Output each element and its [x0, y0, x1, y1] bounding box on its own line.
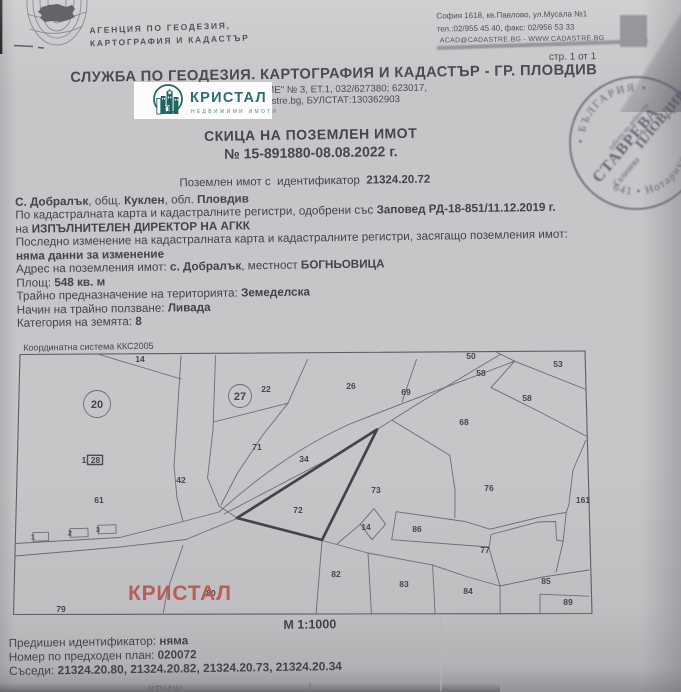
svg-text:КРИЖ: КРИЖ — [148, 683, 183, 692]
svg-text:2: 2 — [68, 531, 72, 538]
svg-text:79: 79 — [56, 604, 66, 614]
svg-text:14: 14 — [361, 522, 371, 532]
svg-text:71: 71 — [252, 442, 262, 452]
svg-text:86: 86 — [412, 524, 422, 534]
svg-text:27: 27 — [234, 391, 246, 403]
svg-text:1: 1 — [82, 455, 87, 465]
svg-text:77: 77 — [480, 545, 490, 555]
svg-text:1: 1 — [31, 535, 35, 542]
svg-text:50: 50 — [466, 351, 476, 361]
svg-text:58: 58 — [522, 393, 532, 403]
svg-text:3: 3 — [96, 527, 100, 534]
svg-text:34: 34 — [299, 454, 309, 464]
svg-text:85: 85 — [541, 576, 551, 586]
svg-text:69: 69 — [401, 387, 411, 397]
svg-text:61: 61 — [94, 495, 104, 505]
svg-text:161: 161 — [576, 495, 590, 505]
svg-text:76: 76 — [484, 483, 494, 493]
svg-text:28: 28 — [91, 455, 101, 465]
svg-text:22: 22 — [261, 384, 271, 394]
svg-text:14: 14 — [135, 354, 145, 364]
svg-text:53: 53 — [553, 359, 563, 369]
svg-text:84: 84 — [463, 586, 473, 596]
svg-text:82: 82 — [331, 569, 341, 579]
svg-text:83: 83 — [399, 579, 409, 589]
svg-text:42: 42 — [176, 475, 186, 485]
svg-text:73: 73 — [371, 485, 381, 495]
svg-text:20: 20 — [91, 399, 103, 411]
svg-text:68: 68 — [459, 417, 469, 427]
svg-text:89: 89 — [563, 597, 573, 607]
svg-text:26: 26 — [346, 381, 356, 391]
svg-text:58: 58 — [476, 368, 486, 378]
svg-text:72: 72 — [293, 505, 303, 515]
